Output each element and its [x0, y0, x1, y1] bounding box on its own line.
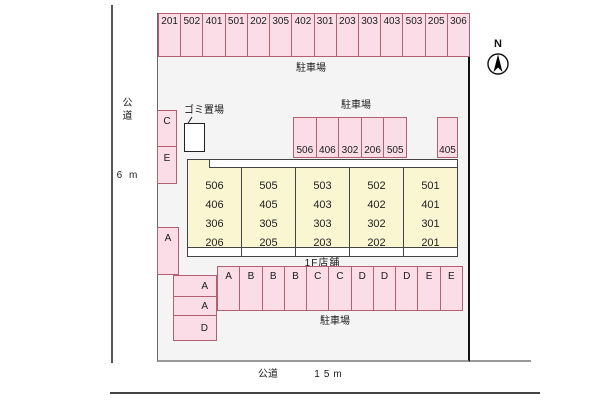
parking-space: E — [157, 146, 177, 184]
building-column: 503 403 303 203 — [295, 168, 349, 256]
site-bottom-line-extension — [470, 360, 531, 362]
parking-row-bottom: A B B B C C D D D E E — [217, 266, 463, 311]
parking-space: C — [306, 266, 329, 311]
parking-space: 503 — [402, 13, 425, 57]
road-label-left: 公道 — [119, 97, 131, 123]
parking-space: C — [157, 110, 177, 147]
parking-space: 305 — [269, 13, 292, 57]
parking-lot-label-bottom: 駐車場 — [285, 316, 385, 328]
unit-number: 503 — [296, 177, 349, 196]
unit-number: 202 — [350, 234, 403, 253]
parking-space: D — [351, 266, 374, 311]
parking-space: 401 — [202, 13, 225, 57]
parking-space: A — [173, 296, 217, 316]
unit-number: 303 — [296, 215, 349, 234]
compass-north-label: N — [486, 38, 510, 50]
parking-row-mid: 506 406 302 206 505 — [293, 117, 407, 158]
unit-number: 506 — [188, 177, 241, 196]
parking-space: 505 — [383, 117, 407, 158]
parking-space: 301 — [314, 13, 337, 57]
parking-space: 502 — [180, 13, 203, 57]
parking-space: D — [173, 315, 217, 341]
parking-space: C — [328, 266, 351, 311]
building-units: 506 406 306 206 505 405 305 205 503 403 … — [188, 167, 457, 256]
unit-number: 405 — [242, 196, 295, 215]
unit-number: 403 — [296, 196, 349, 215]
parking-space: 202 — [247, 13, 270, 57]
parking-space: A — [173, 275, 217, 297]
parking-lot-label-mid: 駐車場 — [306, 100, 406, 112]
bottom-road-edge-line — [110, 392, 540, 394]
parking-space: 303 — [358, 13, 381, 57]
parking-space: E — [440, 266, 463, 311]
parking-space: 201 — [158, 13, 181, 57]
unit-number: 401 — [404, 196, 457, 215]
parking-space: 506 — [293, 117, 317, 158]
building-outline: 506 406 306 206 505 405 305 205 503 403 … — [187, 159, 458, 257]
compass-icon — [486, 51, 510, 77]
unit-number: 406 — [188, 196, 241, 215]
unit-number: 501 — [404, 177, 457, 196]
unit-number: 206 — [188, 234, 241, 253]
parking-space: B — [239, 266, 262, 311]
parking-row-top: 201 502 401 501 202 305 402 301 203 303 … — [158, 13, 470, 57]
unit-number: 305 — [242, 215, 295, 234]
parking-space: A — [157, 227, 179, 275]
parking-space: 402 — [291, 13, 314, 57]
unit-number: 203 — [296, 234, 349, 253]
site-plan-diagram: 公道 6 m N 201 502 401 501 202 305 402 301… — [0, 0, 600, 400]
parking-space: E — [417, 266, 440, 311]
parking-space: 501 — [225, 13, 248, 57]
building-column: 505 405 305 205 — [241, 168, 295, 256]
parking-space: 403 — [380, 13, 403, 57]
parking-space: D — [373, 266, 396, 311]
unit-number: 402 — [350, 196, 403, 215]
unit-number: 205 — [242, 234, 295, 253]
parking-space: 206 — [361, 117, 385, 158]
building-column: 502 402 302 202 — [349, 168, 403, 256]
parking-space: 205 — [425, 13, 448, 57]
parking-lot-label-top: 駐車場 — [261, 63, 361, 75]
unit-number: 301 — [404, 215, 457, 234]
garbage-box — [184, 123, 205, 152]
parking-space: 406 — [316, 117, 340, 158]
unit-number: 306 — [188, 215, 241, 234]
building-notch — [188, 160, 210, 168]
unit-number: 201 — [404, 234, 457, 253]
parking-space: B — [262, 266, 285, 311]
unit-number: 502 — [350, 177, 403, 196]
unit-number: 302 — [350, 215, 403, 234]
road-width-bottom: 15m — [305, 369, 355, 381]
parking-space: A — [217, 266, 240, 311]
parking-space: 306 — [447, 13, 470, 57]
parking-space: D — [395, 266, 418, 311]
parking-space: 405 — [437, 117, 458, 158]
parking-space: 302 — [338, 117, 362, 158]
parking-space: 203 — [336, 13, 359, 57]
parking-space: B — [284, 266, 307, 311]
road-width-left: 6 m — [110, 170, 146, 182]
left-road-edge-line — [111, 5, 113, 363]
unit-number: 505 — [242, 177, 295, 196]
road-label-bottom: 公道 — [243, 369, 293, 381]
building-column: 506 406 306 206 — [188, 168, 241, 256]
building-column: 501 401 301 201 — [403, 168, 457, 256]
